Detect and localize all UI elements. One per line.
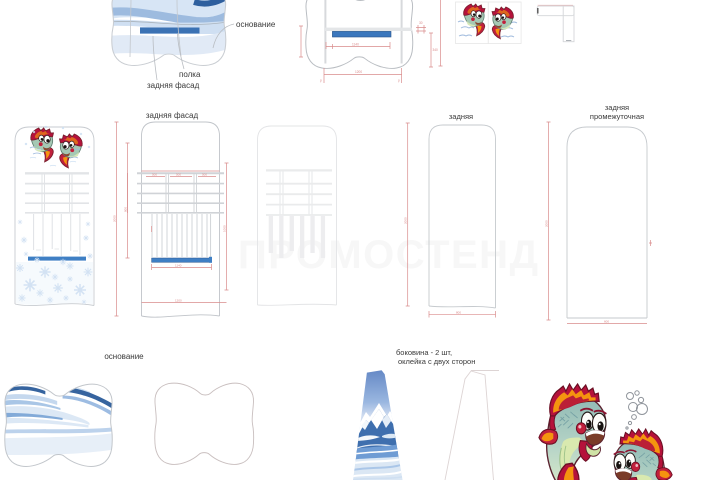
svg-text:1000: 1000 <box>223 225 227 232</box>
svg-text:500: 500 <box>202 173 207 177</box>
svg-text:2000: 2000 <box>113 215 117 222</box>
svg-text:800: 800 <box>456 311 461 315</box>
svg-text:задняя фасад: задняя фасад <box>147 81 200 90</box>
svg-text:полка: полка <box>179 70 201 79</box>
svg-text:р: р <box>398 79 400 83</box>
svg-text:800: 800 <box>124 207 128 212</box>
svg-text:промежуточная: промежуточная <box>590 112 644 121</box>
svg-text:1200: 1200 <box>175 299 182 303</box>
svg-text:1140: 1140 <box>175 264 182 268</box>
svg-text:боковина - 2 шт,: боковина - 2 шт, <box>396 348 452 357</box>
svg-text:задняя фасад: задняя фасад <box>146 111 199 120</box>
svg-text:основание: основание <box>104 352 144 361</box>
svg-text:500: 500 <box>176 173 181 177</box>
svg-text:600: 600 <box>604 320 609 324</box>
svg-text:30: 30 <box>419 21 423 25</box>
svg-text:2000: 2000 <box>545 220 549 227</box>
svg-text:оклейка с двух сторон: оклейка с двух сторон <box>398 357 475 366</box>
svg-text:р: р <box>320 79 322 83</box>
svg-text:500: 500 <box>152 173 157 177</box>
svg-text:основание: основание <box>236 20 276 29</box>
svg-text:задняя: задняя <box>449 112 473 121</box>
svg-text:1140: 1140 <box>352 43 359 47</box>
svg-text:340: 340 <box>433 48 439 52</box>
svg-text:2000: 2000 <box>404 217 408 224</box>
svg-text:1200: 1200 <box>355 70 362 74</box>
svg-text:задняя: задняя <box>605 103 629 112</box>
